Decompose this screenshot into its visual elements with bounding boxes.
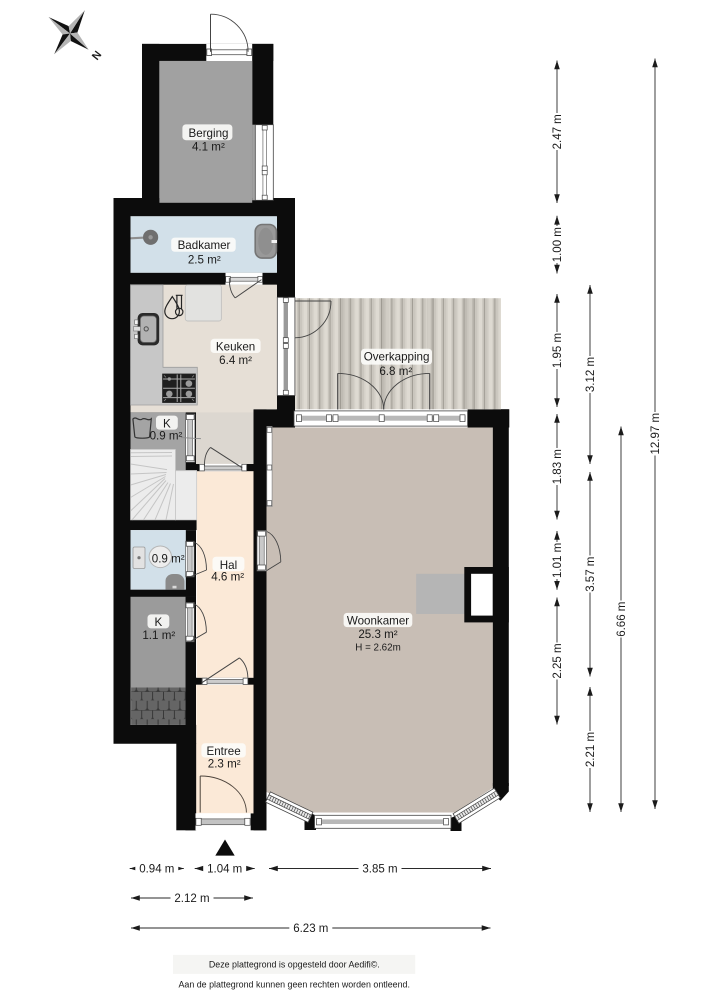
svg-text:K: K [155, 616, 163, 629]
svg-text:2.25 m: 2.25 m [552, 643, 564, 678]
svg-text:0.94 m: 0.94 m [139, 864, 174, 876]
svg-text:0.9 m²: 0.9 m² [150, 430, 183, 443]
svg-text:2.3 m²: 2.3 m² [208, 758, 241, 771]
svg-text:1.95 m: 1.95 m [552, 333, 564, 368]
svg-text:4.6 m²: 4.6 m² [211, 571, 244, 584]
svg-text:1.00 m: 1.00 m [552, 227, 564, 262]
svg-text:3.85 m: 3.85 m [362, 864, 397, 876]
svg-text:2.21 m: 2.21 m [585, 732, 597, 767]
svg-text:3.12 m: 3.12 m [585, 357, 597, 392]
svg-text:H = 2.62m: H = 2.62m [355, 643, 400, 654]
svg-text:2.47 m: 2.47 m [552, 114, 564, 149]
svg-text:2.12 m: 2.12 m [174, 893, 209, 905]
svg-text:0.9 m²: 0.9 m² [152, 553, 185, 566]
svg-text:12.97 m: 12.97 m [650, 413, 662, 455]
svg-text:Berging: Berging [189, 127, 229, 140]
svg-text:Badkamer: Badkamer [178, 239, 231, 252]
svg-text:Entree: Entree [207, 745, 241, 758]
svg-text:K: K [163, 417, 171, 430]
svg-text:4.1 m²: 4.1 m² [192, 140, 225, 153]
svg-text:6.4 m²: 6.4 m² [219, 354, 252, 367]
svg-text:Deze plattegrond is opgesteld: Deze plattegrond is opgesteld door Aedif… [209, 960, 380, 970]
svg-text:Overkapping: Overkapping [364, 350, 430, 363]
svg-text:1.1 m²: 1.1 m² [142, 629, 175, 642]
svg-text:3.57 m: 3.57 m [585, 557, 597, 592]
svg-text:6.66 m: 6.66 m [616, 602, 628, 637]
svg-text:6.8 m²: 6.8 m² [379, 365, 412, 378]
svg-text:1.83 m: 1.83 m [552, 449, 564, 484]
svg-text:1.01 m: 1.01 m [552, 543, 564, 578]
svg-text:6.23 m: 6.23 m [293, 923, 328, 935]
svg-text:1.04 m: 1.04 m [207, 864, 242, 876]
svg-text:25.3 m²: 25.3 m² [358, 628, 397, 641]
svg-text:2.5 m²: 2.5 m² [188, 253, 221, 266]
svg-text:Woonkamer: Woonkamer [347, 615, 409, 628]
svg-text:Keuken: Keuken [216, 340, 255, 353]
svg-text:Aan de plattegrond kunnen geen: Aan de plattegrond kunnen geen rechten w… [178, 980, 409, 990]
